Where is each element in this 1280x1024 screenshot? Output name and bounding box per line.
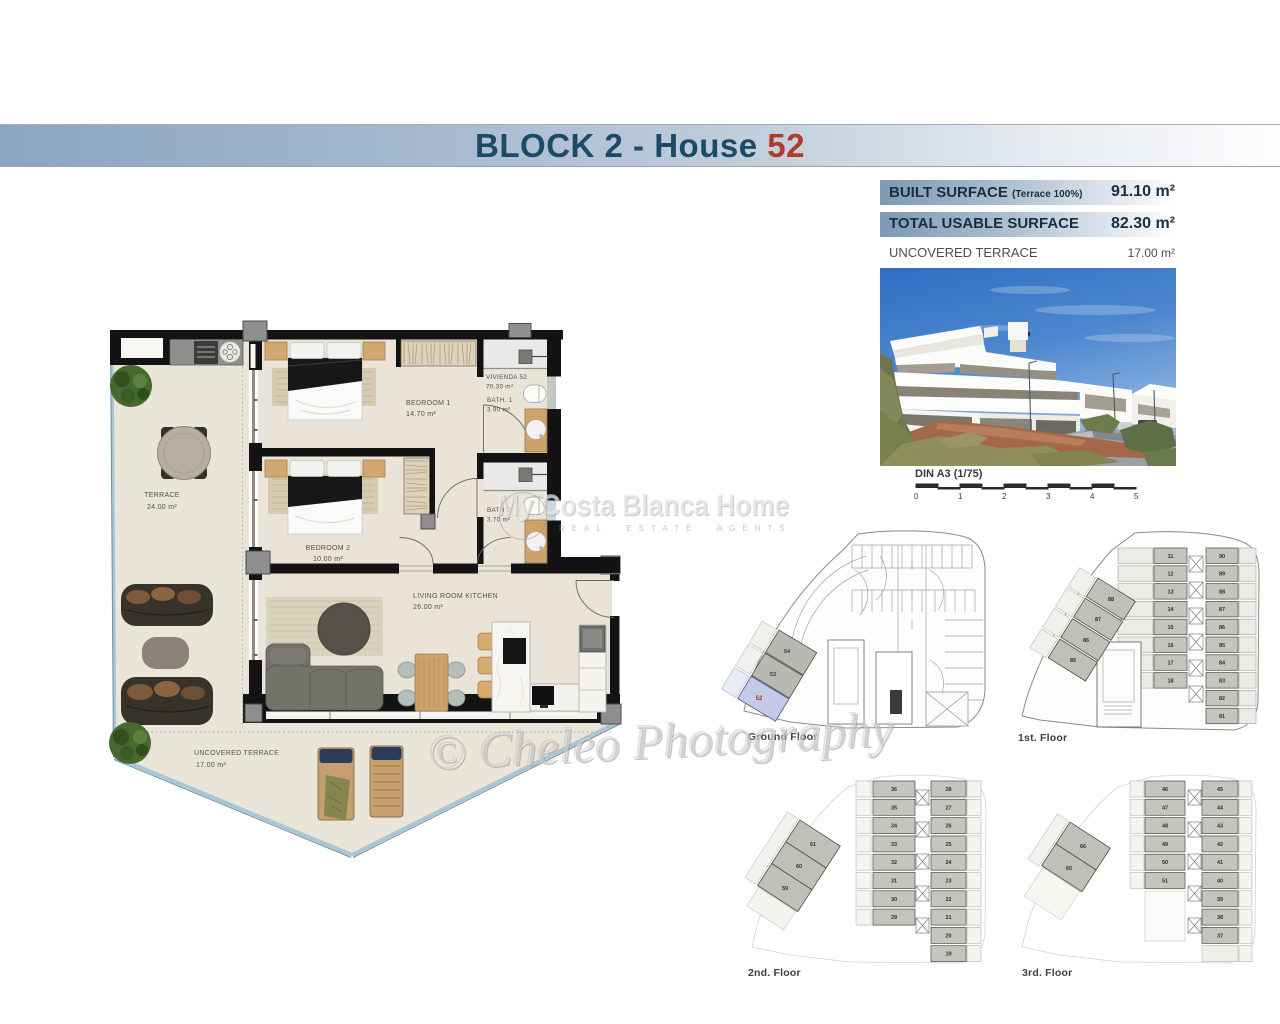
svg-text:35: 35 — [891, 805, 897, 811]
svg-text:85: 85 — [1219, 643, 1225, 649]
svg-text:47: 47 — [1162, 805, 1168, 811]
svg-text:49: 49 — [1162, 842, 1168, 848]
svg-text:90: 90 — [1219, 554, 1225, 560]
svg-text:82: 82 — [1219, 696, 1225, 702]
svg-text:30: 30 — [891, 897, 897, 903]
svg-text:37: 37 — [1217, 933, 1223, 939]
svg-text:20: 20 — [945, 933, 951, 939]
svg-text:34: 34 — [891, 824, 898, 830]
svg-text:33: 33 — [891, 842, 897, 848]
svg-text:15: 15 — [1167, 625, 1173, 631]
svg-text:28: 28 — [945, 787, 951, 793]
svg-text:40: 40 — [1217, 879, 1223, 885]
svg-text:11: 11 — [1168, 554, 1174, 560]
svg-text:59: 59 — [782, 886, 788, 892]
svg-text:87: 87 — [1095, 617, 1101, 623]
svg-text:36: 36 — [891, 787, 897, 793]
svg-text:1st. Floor: 1st. Floor — [1018, 732, 1067, 744]
svg-text:43: 43 — [1217, 824, 1223, 830]
svg-text:29: 29 — [891, 915, 897, 921]
svg-text:65: 65 — [1066, 866, 1072, 872]
svg-text:21: 21 — [945, 915, 951, 921]
svg-text:45: 45 — [1217, 787, 1223, 793]
svg-text:23: 23 — [945, 879, 951, 885]
svg-text:51: 51 — [1162, 879, 1168, 885]
svg-text:86: 86 — [1219, 625, 1225, 631]
svg-text:53: 53 — [770, 672, 776, 678]
svg-text:38: 38 — [1217, 915, 1223, 921]
svg-text:39: 39 — [1217, 897, 1223, 903]
svg-text:83: 83 — [1219, 678, 1225, 684]
svg-text:25: 25 — [945, 842, 951, 848]
svg-text:85: 85 — [1070, 658, 1076, 664]
svg-text:88: 88 — [1108, 597, 1114, 603]
svg-text:89: 89 — [1219, 572, 1225, 578]
svg-text:61: 61 — [810, 842, 816, 848]
svg-text:44: 44 — [1217, 805, 1224, 811]
svg-text:16: 16 — [1167, 643, 1173, 649]
svg-text:12: 12 — [1167, 572, 1173, 578]
svg-text:88: 88 — [1219, 589, 1225, 595]
svg-text:19: 19 — [945, 952, 951, 958]
svg-text:32: 32 — [891, 860, 897, 866]
svg-text:48: 48 — [1162, 824, 1168, 830]
svg-text:60: 60 — [796, 864, 802, 870]
svg-text:66: 66 — [1080, 844, 1086, 850]
svg-text:87: 87 — [1219, 607, 1225, 613]
svg-text:3rd. Floor: 3rd. Floor — [1022, 967, 1072, 979]
svg-text:13: 13 — [1167, 589, 1173, 595]
svg-text:46: 46 — [1162, 787, 1168, 793]
svg-text:86: 86 — [1083, 638, 1089, 644]
svg-text:22: 22 — [945, 897, 951, 903]
svg-text:52: 52 — [756, 696, 763, 702]
svg-text:26: 26 — [945, 824, 951, 830]
svg-text:2nd. Floor: 2nd. Floor — [748, 967, 801, 979]
svg-text:31: 31 — [891, 879, 897, 885]
svg-text:42: 42 — [1217, 842, 1223, 848]
svg-text:81: 81 — [1219, 714, 1225, 720]
svg-text:50: 50 — [1162, 860, 1168, 866]
svg-text:24: 24 — [945, 860, 952, 866]
svg-text:27: 27 — [945, 805, 951, 811]
svg-text:17: 17 — [1167, 661, 1173, 667]
svg-text:84: 84 — [1219, 661, 1226, 667]
svg-text:54: 54 — [784, 649, 791, 655]
svg-text:14: 14 — [1167, 607, 1174, 613]
svg-text:41: 41 — [1217, 860, 1223, 866]
svg-text:18: 18 — [1167, 678, 1173, 684]
